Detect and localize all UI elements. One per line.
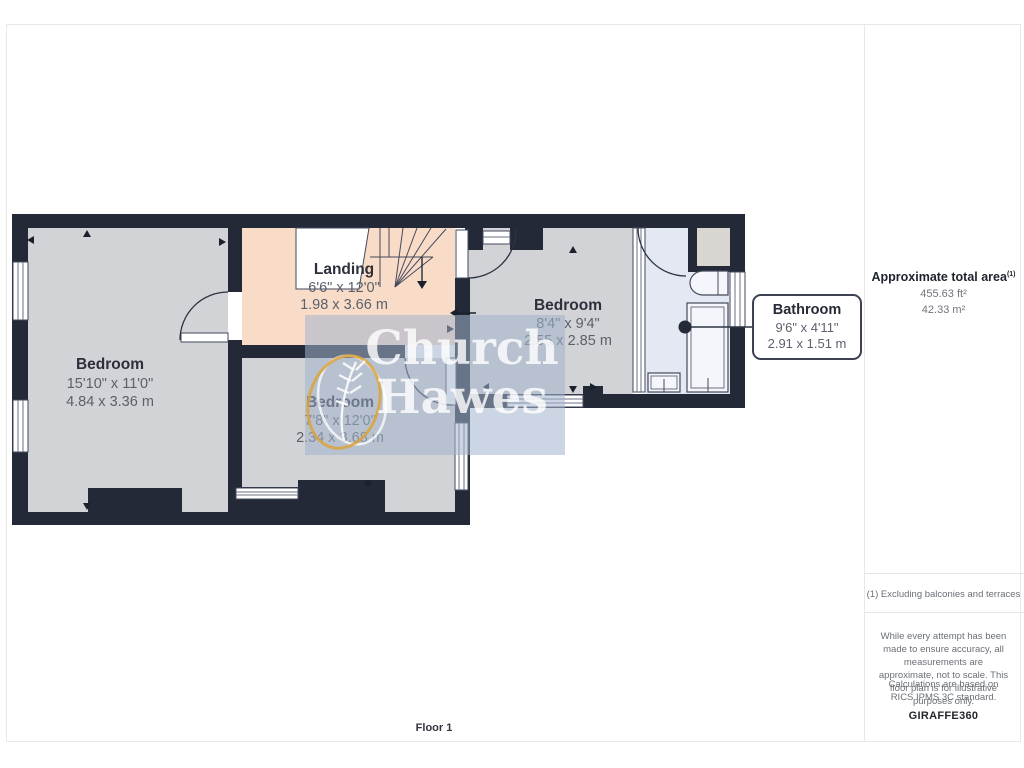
- floorplan-page: Bedroom 15'10" x 11'0" 4.84 x 3.36 m Lan…: [0, 0, 1024, 768]
- sidebar-vertical-divider: [864, 24, 865, 742]
- page-frame: [6, 24, 1021, 742]
